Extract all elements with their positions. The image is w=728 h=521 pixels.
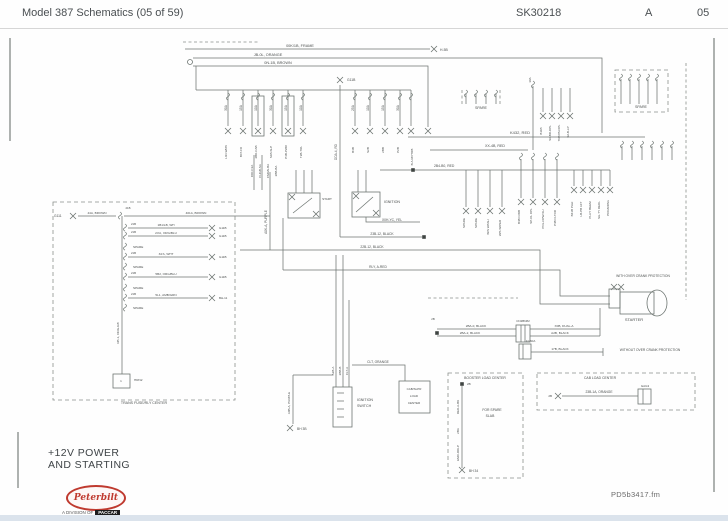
wire-label: RED-A-BK [456,400,460,414]
wire-label: 2BA [456,428,460,434]
wire-label: 2B [467,382,471,386]
component-rect [638,389,651,404]
wire-label: 30A [528,77,532,82]
wire-label: 15A [239,104,243,111]
wire-label: H-5B [440,48,448,52]
wire-label: POL-DPW-SU [541,209,545,228]
wire-label: SP-DL DPL [529,208,533,224]
wire-label: RB-1, ORG-GB [116,322,120,343]
wire-label: 25A [351,104,355,111]
wire-label: 2BA-2, BLACK [460,331,481,335]
wire-label: 2B [548,394,552,398]
wire-label: LB-PB AFT [579,201,583,216]
wire-label: D0F-C2A [250,165,254,178]
wire-label: B11B [539,127,543,134]
node-dot [435,331,439,335]
dashed-box [53,202,235,400]
wire-label: STARTER [625,317,643,322]
wire-label: A0B-A, PURPLE [287,392,291,414]
wire-label: RLY, A-RED [369,265,387,269]
wire [293,198,312,213]
wire-label: CLT-A [345,367,349,375]
wire-label: 2B4-B0, RED [434,164,455,168]
wire-label: A2B, BLACK [551,331,570,335]
wire-label: 10A [366,104,370,111]
wire-label: SWITCH [357,404,372,408]
wire-label: W/S WASH [486,219,490,234]
breaker-symbol [119,212,122,219]
wire-label: 2BB-B [338,367,342,376]
wire-label: 22B-12, BLACK [360,245,384,249]
wire-label: SPARE [133,245,143,249]
peterbilt-logo-text: Peterbilt [74,493,118,503]
wire-label: 30A [224,104,228,111]
wire-label: B4B [351,147,355,153]
wire-label: CN2BN82 [516,319,530,323]
wire-label: 2BB-BA [274,166,278,177]
wire-label: SPARE [133,306,143,310]
wire-label: CMGN-BA [266,164,270,178]
wire-label: 21B [126,206,131,210]
wire-label: S1B-SLP [269,146,273,158]
wire-label: START [322,197,332,201]
wire-label: WITHOUT OVER CRANK PROTECTION [620,348,681,352]
wire-label: IGNITION [384,200,400,204]
wire-label: 2BD-CAB [254,145,258,158]
wire-label: CAB LOAD CENTER [584,376,617,380]
wire-label: X0B, DUAL-A [555,324,575,328]
wire-label: 1B1/LB, WH [157,223,174,227]
wire-label: 2BA-0, BLACK [466,324,487,328]
wire-label: 23B-1A, ORANGE [585,390,613,394]
wire-label: LOAD [410,394,419,398]
wire-label: B4T-FD [239,146,243,157]
wire [283,270,610,296]
breaker-symbol [124,273,127,280]
component-ellipse [647,290,667,316]
wire-label: BH 34 [469,469,478,473]
node-dot [422,235,426,239]
wire-label: S/LBR-DPL [548,125,552,141]
wire-label: SLAB [486,414,495,418]
wire-label: FOR SPARE [482,408,502,412]
wire-label: GAG3 [641,384,650,388]
wire-label: 15A [284,104,288,111]
wire-label: CHGB-SA [258,164,262,178]
wire-label: WITH OVER CRANK PROTECTION [616,274,670,278]
wire-label: SPARE [635,105,648,109]
wire-label: SPARE [475,106,488,110]
component-rect [609,289,620,308]
wire-label: EMD-RDLP [456,445,460,461]
wire-label: 24'A, ORG/BLU [155,231,177,235]
wire-label: SPARE [133,265,143,269]
wire-label: CLT, ORANGE [367,360,390,364]
breaker-symbol [124,224,127,231]
schematic-canvas: 00K/1B, FRAMEJB-0L, ORANGE0N-1B, BROWNH-… [0,0,728,521]
wire-label: T2B-TRL [299,146,303,159]
wire-label: 2B [431,317,435,321]
wire-label: 1 [120,379,122,383]
wire-label: 00K/1B, FRAME [286,44,314,48]
breaker-symbol [124,232,127,239]
wire-label: CAB/SLPR [407,387,423,391]
wire-label: TRANS FUSE/RLY CENTER [121,401,168,405]
wire-label: TRAYB-DPL [557,124,561,141]
wire-label: 401A, BROWN [186,211,207,215]
wire-label: G11B [219,226,226,230]
wire-label: XX-4B, RED [485,144,505,148]
wire-label: 30A [396,104,400,111]
wire-label: B4B F/WB [517,210,521,224]
wire-label: B41B PLEI [570,202,574,217]
wire-label: SPARE [462,218,466,228]
wire-label: 2BB [381,147,385,153]
wire-label: A2B-A [331,367,335,376]
wire-label: K432, RED [510,130,530,135]
wire-label: B.A.RP/TRB [410,149,414,166]
wire-label: G11B [219,255,226,259]
wire-label: 15A [381,104,385,111]
splice-circle [188,60,193,65]
wire-label: L4D-WRN [224,145,228,159]
wire [240,250,610,304]
wire-label: 23B-12, BLACK [370,232,394,236]
peterbilt-logo: Peterbilt [66,485,126,511]
node-dot [411,168,415,172]
bottom-edge-strip [0,515,728,521]
wire-label: S2B [366,147,370,153]
wire-label: P2B [396,147,400,153]
wire-label: BOOSTER LOAD CENTER [464,376,506,380]
wire-label: JB-0L, ORANGE [254,53,283,57]
breaker-symbol [124,243,127,250]
wire-label: X0H-YC, YEL [382,218,402,222]
wire-label: G11B [219,275,226,279]
wire-label: BH-11 [219,296,228,300]
wire-label: 34'A, WHT [159,252,174,256]
wire-label: SH-TY REDL [597,201,601,219]
breaker-symbol [124,284,127,291]
wire-label: 5B2, ORG/BLU [155,272,176,276]
wire-label: 21B [131,222,136,226]
wire-label: 44A, BROWN [87,211,106,215]
wire-label: G11B [347,78,356,82]
wire-label: SPARE [133,286,143,290]
wire-label: 17B, BLACK [551,347,569,351]
component-rect [519,344,531,359]
wire-label: G111 [54,214,62,218]
wire-label: A0K-A, PURPLE [264,210,268,234]
breaker-symbol [124,294,127,301]
wire [356,197,373,212]
breaker-symbol [124,304,127,311]
wire-label: 21B [131,251,136,255]
wire [352,365,405,381]
schematic-page: Model 387 Schematics (05 of 59) SK30218 … [0,0,728,521]
wire-label: P4B-PWR [284,144,288,159]
wire-label: DDA-4, RD [334,143,338,160]
wire [193,58,602,133]
wire-label: HRN2 [134,378,143,382]
wire-label: G11B [219,234,226,238]
dashed-box [448,373,523,478]
wire-label: W/S WIPER [498,219,502,236]
breaker-symbol [124,253,127,260]
wire-label: 21B [131,230,136,234]
file-reference: PD5b3417.fm [611,490,660,499]
wire-label: S/LB-LP [566,126,570,137]
wire-label: BH 3B [297,427,307,431]
breaker-symbol [124,263,127,270]
sheet-title: +12V POWER AND STARTING [48,448,130,471]
wire-label: 0N-1B, BROWN [264,61,292,65]
wire-label: IGNITION [357,398,373,402]
wire-label: SPARE [474,218,478,228]
wire-label: CENTER [408,401,421,405]
wire-label: P4B FLTDR [553,209,557,226]
wire-label: FU60A [526,339,535,343]
wire-label: 10A [254,104,258,111]
wire-label: POGN/PAG [606,199,610,215]
wire-label: PH-IY BEEM [588,201,592,219]
node-dot [460,382,464,386]
wire-label: 10A [299,104,303,111]
wire-label: 5L1, AMB/GRN [155,293,176,297]
wire-label: 30A [269,104,273,111]
wire-label: 21B [131,292,136,296]
wire-label: 21B [131,271,136,275]
